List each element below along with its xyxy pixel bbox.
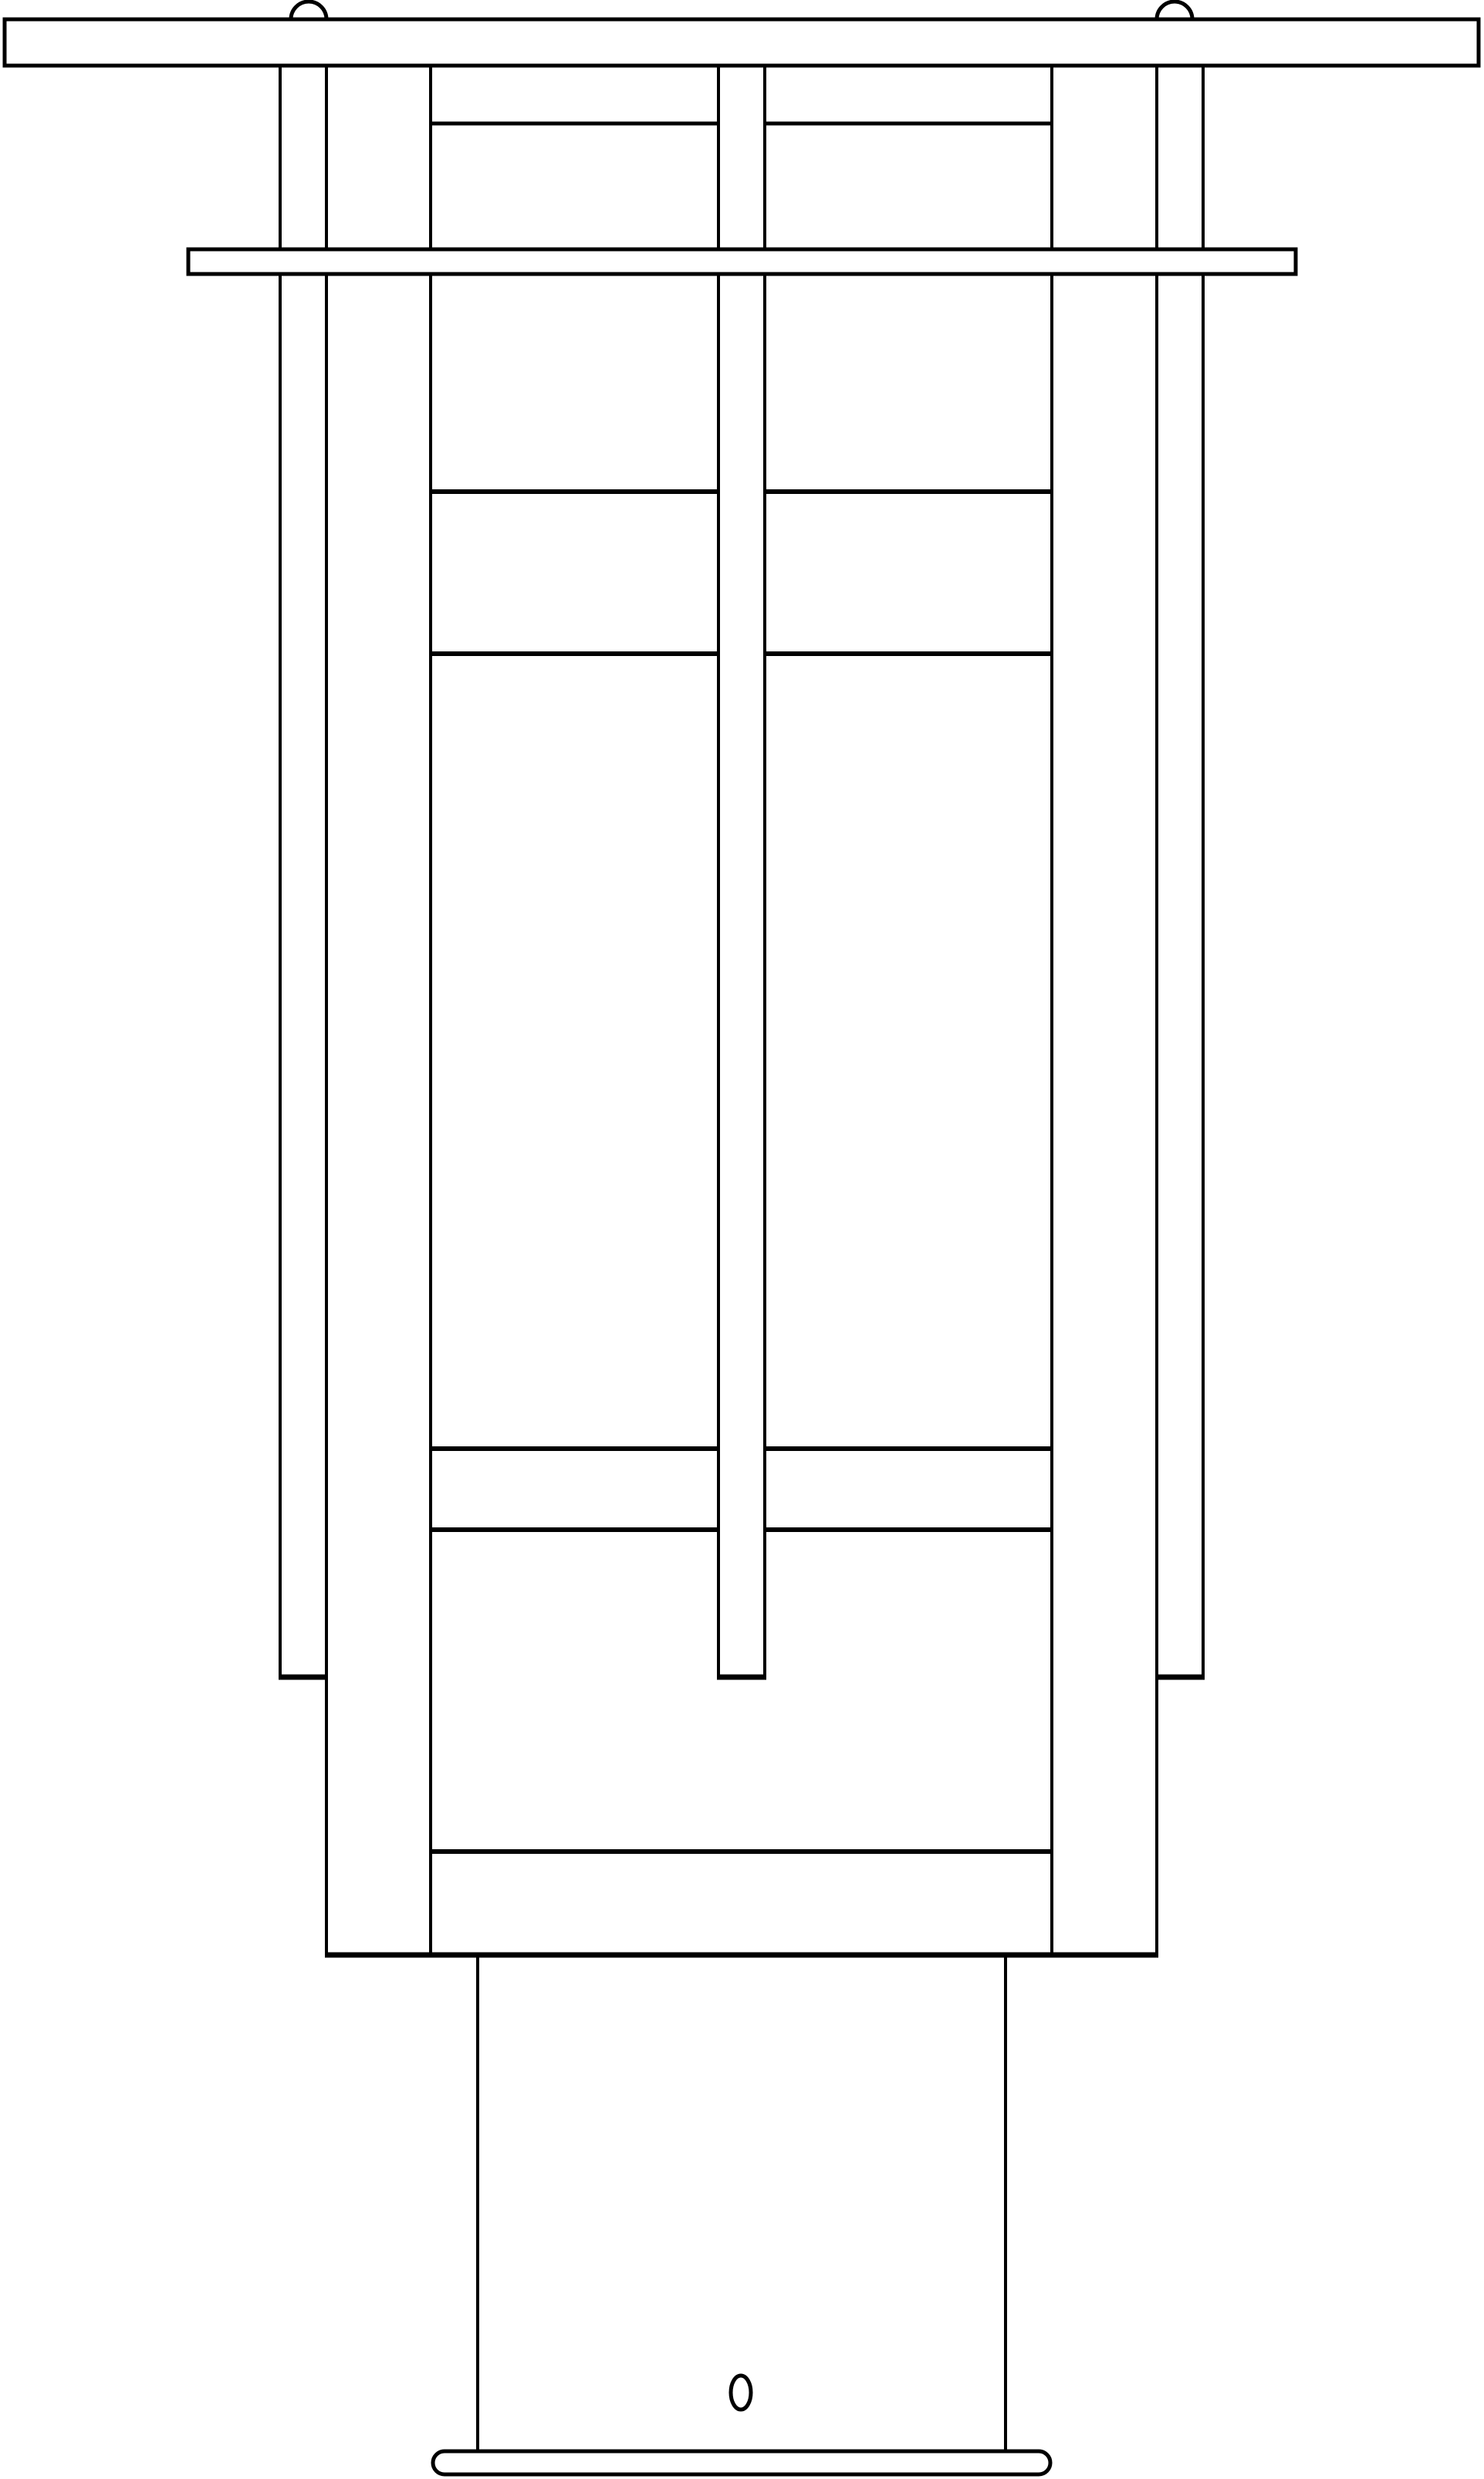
set-screw-hole bbox=[731, 2376, 751, 2410]
roof-cap-plate bbox=[5, 19, 1479, 66]
base-flange bbox=[433, 2451, 1050, 2474]
lantern-technical-drawing bbox=[0, 0, 1484, 2479]
mid-roof-plate bbox=[188, 249, 1296, 274]
lantern-line-drawing-svg bbox=[0, 0, 1484, 2479]
